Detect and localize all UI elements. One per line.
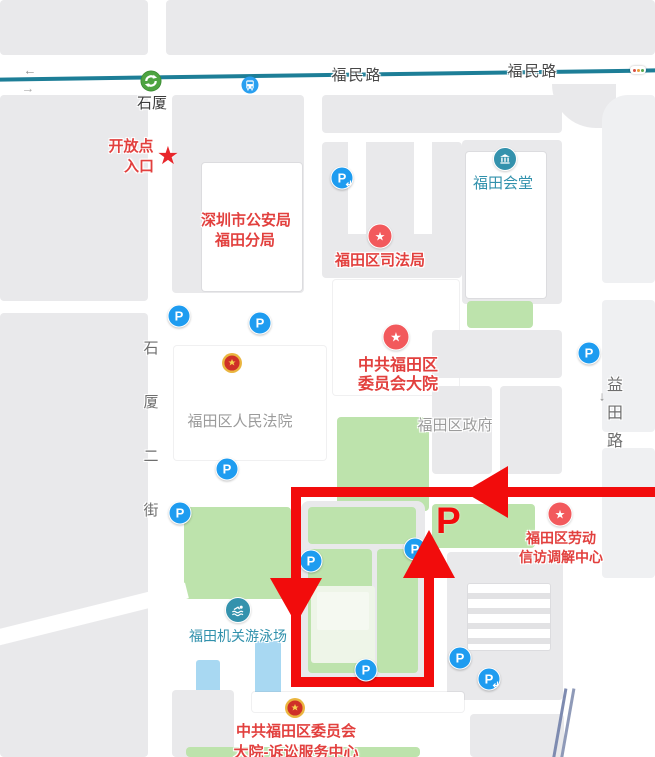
- metro-station-label: 石厦: [137, 92, 167, 113]
- road-char: 益: [607, 371, 623, 395]
- poi-litigation-line1: 中共福田区委员会: [236, 720, 356, 741]
- parking-letter: P: [223, 462, 232, 477]
- road-label-shixia-2nd-st: 石 厦 二 街: [143, 337, 158, 520]
- green-area: [467, 301, 533, 328]
- city-block: [432, 330, 562, 378]
- traffic-light-icon[interactable]: [630, 66, 646, 74]
- entrance-label-line1: 开放点: [108, 135, 153, 156]
- poi-star-icon-labor[interactable]: ★: [548, 502, 573, 527]
- poi-police-line1: 深圳市公安局: [201, 209, 291, 230]
- map-canvas: 福民路 福民路 ← → 石厦 石 厦 二 街: [0, 0, 655, 757]
- traffic-dot-amber: [637, 69, 640, 72]
- court-emblem-icon[interactable]: [222, 353, 243, 374]
- oneway-arrow-icon: ←: [24, 63, 37, 78]
- road-char: 田: [607, 399, 623, 423]
- road-char: 石: [143, 337, 158, 358]
- parking-letter: P: [362, 663, 371, 678]
- poi-labor-line1: 福田区劳动: [526, 528, 596, 548]
- parking-entrance-icon[interactable]: P: [331, 167, 354, 190]
- parking-icon[interactable]: P: [355, 659, 378, 682]
- city-block: [322, 95, 562, 133]
- bus-stop-icon[interactable]: [242, 77, 259, 94]
- entrance-label-line2: 入口: [124, 155, 154, 176]
- parking-letter: P: [307, 554, 316, 569]
- road-label-fumin: 福民路: [331, 64, 382, 85]
- city-block: [602, 95, 655, 283]
- road-char: 路: [607, 427, 623, 451]
- metro-station-icon[interactable]: [141, 71, 162, 92]
- city-block: [470, 714, 564, 757]
- green-area: [337, 417, 429, 511]
- road-label-yitian: 益 田 路: [607, 371, 623, 451]
- parking-icon[interactable]: P: [169, 502, 192, 525]
- swimming-icon[interactable]: [225, 597, 251, 623]
- parking-icon[interactable]: P: [404, 538, 427, 561]
- parking-icon[interactable]: P: [168, 305, 191, 328]
- parking-icon[interactable]: P: [449, 647, 472, 670]
- poi-star-icon-committee[interactable]: ★: [383, 324, 410, 351]
- road-label-fumin: 福民路: [507, 60, 558, 81]
- building-roof: [317, 592, 369, 630]
- city-block: [602, 448, 655, 578]
- oneway-arrow-icon: →: [22, 81, 35, 96]
- parking-letter: P: [411, 542, 420, 557]
- road-char: 厦: [143, 391, 158, 412]
- parking-letter: P: [176, 506, 185, 521]
- poi-star-icon-justice[interactable]: ★: [368, 224, 393, 249]
- poi-swimming-label: 福田机关游泳场: [189, 626, 287, 646]
- parking-icon[interactable]: P: [300, 550, 323, 573]
- city-block: [166, 0, 655, 55]
- parking-icon[interactable]: P: [216, 458, 239, 481]
- route-parking-label: P: [436, 500, 461, 542]
- parking-icon[interactable]: P: [578, 342, 601, 365]
- traffic-dot-green: [641, 69, 644, 72]
- parking-icon[interactable]: P: [249, 312, 272, 335]
- yitian-direction-arrow: ↓: [599, 389, 606, 404]
- traffic-dot-red: [633, 69, 636, 72]
- city-block: [0, 95, 148, 301]
- parking-letter: P: [585, 346, 594, 361]
- green-area: [184, 507, 291, 599]
- poi-hall-label: 福田会堂: [473, 172, 533, 193]
- building-striped: [468, 584, 550, 650]
- poi-police-line2: 福田分局: [215, 229, 275, 250]
- green-area: [377, 549, 418, 673]
- parking-letter: P: [456, 651, 465, 666]
- poi-court-label: 福田区人民法院: [187, 410, 292, 431]
- poi-committee-line2: 委员会大院: [358, 370, 438, 394]
- hall-building-icon[interactable]: [493, 147, 517, 171]
- parking-letter: P: [175, 309, 184, 324]
- courtyard-gap: [414, 142, 432, 234]
- city-block-government: [500, 386, 562, 474]
- parking-letter: P: [256, 316, 265, 331]
- poi-litigation-line2: 大院-诉讼服务中心: [234, 741, 359, 757]
- poi-justice-label: 福田区司法局: [335, 249, 425, 270]
- city-block: [0, 0, 148, 55]
- entrance-star-icon: ★: [157, 141, 179, 171]
- road-char: 二: [143, 445, 158, 466]
- poi-government-label: 福田区政府: [417, 414, 492, 435]
- road-char: 街: [143, 499, 158, 520]
- poi-labor-line2: 信访调解中心: [519, 547, 603, 567]
- green-area: [308, 507, 416, 544]
- litigation-emblem-icon[interactable]: [285, 698, 306, 719]
- building-court: [174, 346, 326, 460]
- parking-entrance-icon[interactable]: P: [478, 668, 501, 691]
- city-block: [0, 313, 148, 757]
